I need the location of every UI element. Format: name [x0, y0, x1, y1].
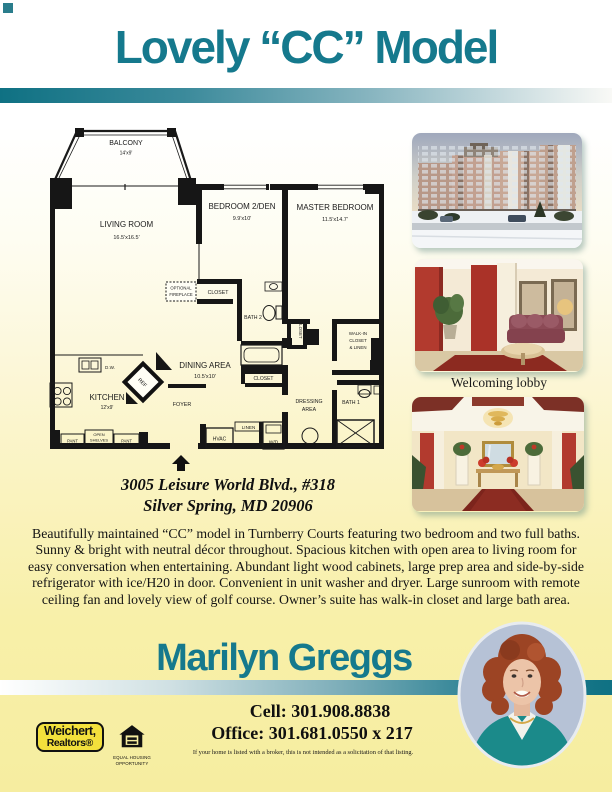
equal-housing-logo: EQUAL HOUSING OPPORTUNITY — [110, 724, 154, 766]
top-gradient-bar — [0, 88, 612, 103]
closet2-label: CLOSET — [253, 376, 273, 382]
weichert-logo-line1: Weichert, — [44, 725, 96, 738]
description-line: Sunny & bright with neutral décor throug… — [18, 542, 594, 558]
closet-vertical-label: CLOSET — [298, 321, 303, 339]
linen-label: LINEN — [242, 425, 256, 430]
property-description: Beautifully maintained “CC” model in Tur… — [18, 526, 594, 608]
shelves-label-2: SHELVES — [90, 438, 108, 443]
property-address: 3005 Leisure World Blvd., #318 Silver Sp… — [121, 474, 335, 516]
fireplace-label-2: FIREPLACE — [169, 292, 192, 297]
balcony-label: BALCONY — [109, 140, 143, 147]
eho-text-line2: OPPORTUNITY — [110, 761, 154, 767]
dressing-label-2: AREA — [302, 407, 317, 413]
balcony-walls — [53, 131, 192, 184]
description-line: Beautifully maintained “CC” model in Tur… — [18, 526, 594, 542]
weichert-realtors-logo: Weichert, Realtors® — [36, 722, 104, 752]
office-phone: Office: 301.681.0550 x 217 — [211, 723, 412, 744]
foyer-label: FOYER — [173, 402, 192, 408]
description-line: easy conversation when entertaining. Abu… — [18, 559, 594, 575]
agent-name: Marilyn Greggs — [156, 637, 412, 680]
balcony-dims: 14'x9' — [120, 151, 133, 157]
coffered-ceiling — [412, 397, 584, 431]
flyer-page: Lovely “CC” Model — [0, 0, 612, 792]
living-room-dims: 16.5'x16.5' — [113, 235, 139, 241]
pantry1-label: PANT — [67, 439, 78, 444]
living-room-label: LIVING ROOM — [100, 220, 154, 229]
bedroom2-label: BEDROOM 2/DEN — [208, 202, 275, 211]
hvac-label: HVAC — [213, 437, 227, 443]
face — [503, 659, 541, 705]
disclaimer-text: If your home is listed with a broker, th… — [193, 749, 413, 756]
bath1-label: BATH 1 — [342, 400, 360, 406]
dining-label: DINING AREA — [179, 361, 231, 370]
equal-housing-house-icon — [117, 724, 147, 750]
shelves-label-1: OPEN — [93, 432, 104, 437]
lobby-photo — [415, 259, 583, 372]
refrigerator: REF — [125, 364, 162, 401]
pantry2-label: PANT — [121, 439, 132, 444]
dishwasher-label: D.W. — [105, 365, 115, 370]
foyer-photo — [412, 397, 584, 512]
bath2-label: BATH 2 — [244, 315, 262, 321]
corner-accent-square — [3, 3, 13, 13]
walkin-label-3: & LINEN — [349, 345, 366, 350]
closet1-label: CLOSET — [208, 290, 230, 296]
description-line: ceiling fan and lovely view of golf cour… — [18, 592, 594, 608]
lobby-caption: Welcoming lobby — [451, 375, 547, 391]
washer-dryer-label: W/D — [269, 440, 279, 446]
kitchen-dims: 12'x9' — [101, 405, 114, 411]
kitchen-label: KITCHEN — [89, 393, 124, 402]
dining-dims: 10.5'x10' — [194, 374, 216, 380]
address-line-2: Silver Spring, MD 20906 — [121, 495, 335, 516]
master-bedroom-label: MASTER BEDROOM — [297, 203, 374, 212]
condo-building — [418, 143, 576, 212]
eho-text-line1: EQUAL HOUSING — [110, 755, 154, 761]
walkin-label-2: CLOSET — [349, 338, 367, 343]
building-photo — [412, 133, 582, 248]
address-line-1: 3005 Leisure World Blvd., #318 — [121, 474, 335, 495]
master-bedroom-dims: 11.5'x14.7' — [322, 217, 348, 223]
page-title: Lovely “CC” Model — [0, 24, 612, 70]
bedroom2-dims: 9.9'x10' — [233, 216, 252, 222]
cell-phone: Cell: 301.908.8838 — [250, 701, 390, 722]
agent-portrait — [456, 620, 588, 770]
floor-plan: REF BALCONY 14'x9' LIVING ROOM 16.5'x16.… — [38, 112, 398, 458]
weichert-logo-line2: Realtors® — [44, 738, 96, 749]
entry-arrow-icon — [172, 455, 190, 471]
fireplace-label-1: OPTIONAL — [170, 286, 192, 291]
dressing-label-1: DRESSING — [295, 399, 322, 405]
walkin-label-1: WALK-IN — [349, 331, 367, 336]
description-line: refrigerator with ice/H20 in door. Conve… — [18, 575, 594, 591]
foyer-floor — [412, 489, 584, 511]
